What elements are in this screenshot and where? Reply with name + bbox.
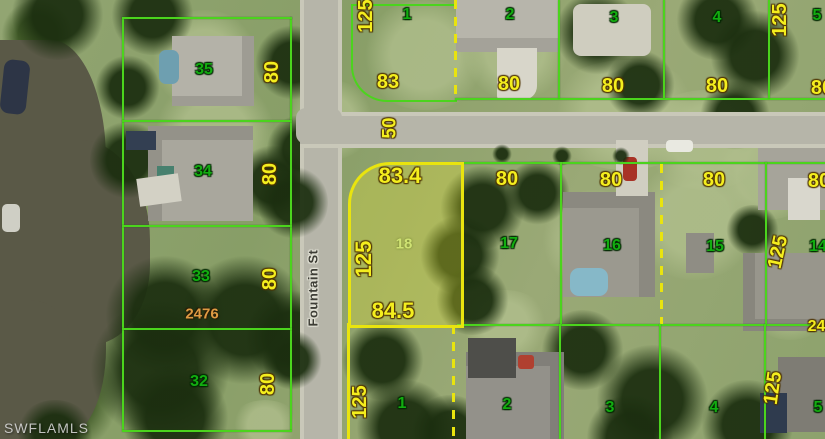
block-id-label: 2476 [185, 307, 218, 322]
lot-dimension-label: 125 [350, 385, 370, 418]
dashed-lot-line [452, 325, 455, 439]
parcel-line [559, 324, 561, 439]
parcel-line [765, 162, 767, 324]
lot-number-label: 14 [809, 239, 825, 255]
subject-front-dimension: 83.4 [379, 165, 422, 187]
lot-dimension-label: 125 [770, 3, 790, 36]
parcel-line [457, 162, 825, 164]
subject-rear-dimension: 84.5 [372, 300, 415, 322]
lot-dimension-label: 80 [600, 170, 622, 190]
lot-dimension-label: 80 [262, 61, 282, 83]
lot-number-label: 2 [506, 7, 515, 23]
lot-dimension-label: 80 [706, 76, 728, 96]
parcel-line [122, 225, 292, 227]
lot-dimension-label: 80 [811, 78, 825, 98]
lot-number-label: 32 [190, 374, 208, 390]
patio [468, 338, 516, 378]
lot-dimension-label: 80 [496, 169, 518, 189]
parcel-line [558, 0, 560, 98]
block-id-label: 246 [808, 319, 825, 335]
subject-lot-number: 18 [396, 237, 413, 252]
lot-dimension-label: 80 [498, 74, 520, 94]
lot-number-label: 5 [814, 400, 823, 416]
dashed-lot-line [660, 164, 663, 324]
parcel-line [457, 324, 825, 326]
dashed-lot-line [454, 0, 457, 98]
parcel-line [663, 0, 665, 98]
swimming-pool [159, 50, 179, 84]
subject-side-dimension: 125 [353, 241, 375, 278]
lot-dimension-label: 125 [761, 370, 785, 406]
swimming-pool [570, 268, 608, 296]
lot-number-label: 16 [603, 238, 621, 254]
lot-number-label: 4 [710, 400, 719, 416]
aerial-parcel-map: 35 34 33 32 80 80 80 80 2476 1 2 3 4 5 1… [0, 0, 825, 439]
highlight-lot-line [347, 323, 350, 439]
parcel-line [290, 17, 292, 430]
solar-panels [126, 131, 156, 150]
lot-number-label: 2 [503, 397, 512, 413]
lot-number-label: 5 [813, 8, 822, 24]
lot-number-label: 33 [192, 269, 210, 285]
lot-dimension-label: 83 [377, 72, 399, 92]
patio-furniture [518, 355, 534, 369]
lot-number-label: 1 [403, 7, 412, 23]
street-name-label: Fountain St [307, 250, 320, 327]
lot-dimension-label: 80 [602, 76, 624, 96]
parcel-line [659, 324, 661, 439]
lot-number-label: 35 [195, 62, 213, 78]
lot-number-label: 3 [610, 10, 619, 26]
white-car [666, 140, 693, 152]
parcel-line [455, 98, 825, 100]
lot-number-label: 17 [500, 236, 518, 252]
parcel-line [122, 17, 292, 19]
lot-number-label: 3 [606, 400, 615, 416]
lot-number-label: 4 [713, 10, 722, 26]
lot-number-label: 34 [194, 164, 212, 180]
lot-dimension-label: 80 [808, 171, 825, 191]
road-intersection [296, 108, 342, 144]
lot-dimension-label: 80 [258, 373, 278, 395]
parcel-line [122, 430, 292, 432]
boat [2, 204, 20, 232]
lot-dimension-label: 125 [356, 0, 376, 33]
lot-dimension-label: 80 [703, 170, 725, 190]
lot-dimension-label: 80 [260, 163, 280, 185]
road-width-label: 50 [381, 117, 400, 138]
parcel-line [560, 162, 562, 324]
lot-number-label: 15 [706, 239, 724, 255]
mls-watermark: SWFLAMLS [4, 420, 89, 436]
lot-number-label: 1 [398, 396, 407, 412]
parcel-line [122, 120, 292, 122]
boat-dock [136, 173, 181, 207]
parcel-line [122, 17, 124, 430]
parcel-line [122, 328, 292, 330]
lot-dimension-label: 80 [260, 268, 280, 290]
